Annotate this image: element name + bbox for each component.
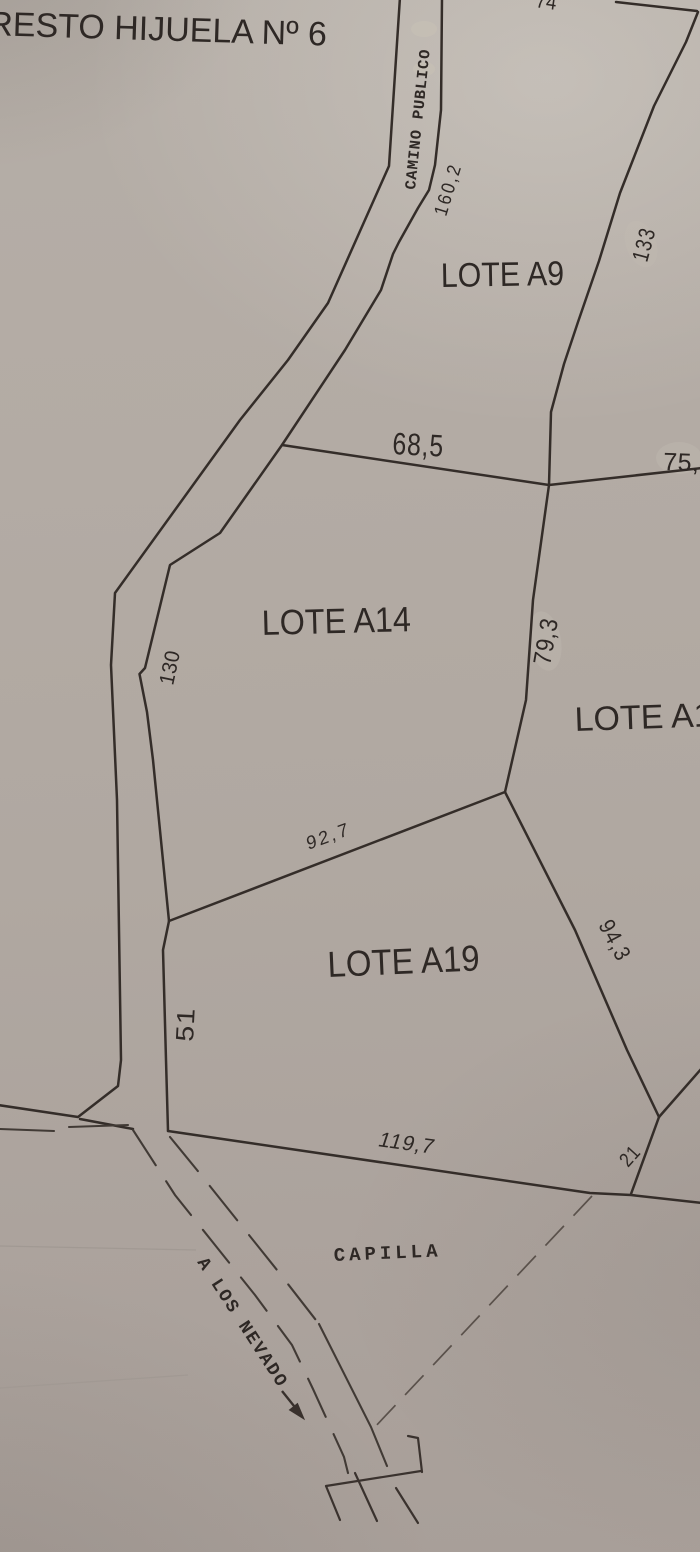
- svg-text:75,: 75,: [663, 448, 700, 477]
- svg-text:119,7: 119,7: [375, 1129, 438, 1159]
- svg-text:130: 130: [155, 648, 185, 687]
- svg-text:LOTE A15: LOTE A15: [574, 696, 700, 739]
- svg-text:RESTO HIJUELA Nº 6: RESTO HIJUELA Nº 6: [0, 5, 327, 54]
- svg-text:LOTE A19: LOTE A19: [327, 939, 481, 985]
- svg-text:CAMINO PUBLICO: CAMINO PUBLICO: [402, 48, 435, 191]
- svg-text:A LOS NEVADO: A LOS NEVADO: [192, 1254, 291, 1392]
- svg-text:68,5: 68,5: [392, 426, 445, 463]
- svg-text:51: 51: [171, 1007, 201, 1043]
- svg-text:LOTE A9: LOTE A9: [440, 254, 564, 294]
- svg-text:LOTE A14: LOTE A14: [261, 600, 411, 644]
- svg-text:94,3: 94,3: [593, 915, 636, 965]
- svg-text:74: 74: [534, 0, 558, 15]
- svg-text:92,7: 92,7: [304, 818, 352, 854]
- svg-text:CAPILLA: CAPILLA: [333, 1240, 442, 1267]
